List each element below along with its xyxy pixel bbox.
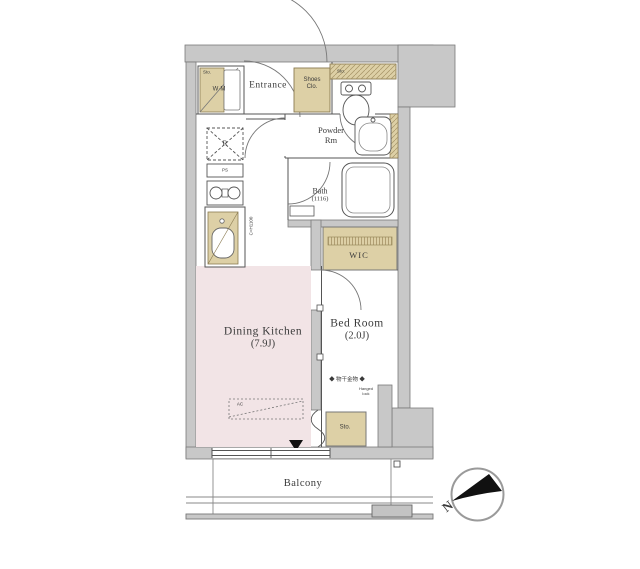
entrance-label: Entrance [249, 81, 287, 92]
laundry-corner-label: Sto. [203, 69, 211, 74]
refrigerator-label: R [222, 140, 227, 149]
balcony-label: Balcony [284, 478, 323, 490]
ac-label: AC [237, 401, 243, 406]
dining-kitchen-label: Dining Kitchen (7.9J) [224, 325, 302, 350]
folding-door [311, 410, 325, 447]
powder-room-label: Powder Rm [318, 126, 344, 146]
powder-door-arc [245, 118, 285, 158]
floor-plan: Sto. W·M Entrance Shoes Clo. Sto. Powder… [0, 0, 640, 569]
dining-kitchen-floor [196, 266, 311, 447]
laundry-label: W·M [213, 87, 226, 94]
toilet-shelf-label: Sto. [337, 68, 345, 73]
balcony-window [212, 448, 330, 458]
counter-height-label: C=H1100 [248, 217, 253, 236]
bed-room-label: Bed Room (2.0J) [330, 317, 384, 342]
wic-closet [323, 227, 397, 270]
north-compass-icon [452, 469, 504, 521]
washbasin [355, 114, 398, 158]
window-note-label: Hanged lock [359, 387, 373, 397]
shoes-closet-label: Shoes Clo. [303, 77, 320, 91]
kitchen-sink [205, 207, 245, 267]
drying-hardware-label: ◆ 物干金物 ◆ [329, 377, 365, 383]
bath-label: Bath (1116) [312, 187, 329, 204]
bedroom-door-arc [321, 270, 361, 310]
storage-label: Sto. [340, 425, 351, 432]
pipe-shaft-label: PS [222, 167, 228, 172]
stove [207, 181, 243, 205]
bathtub [290, 163, 394, 217]
wic-label: WIC [349, 251, 369, 261]
